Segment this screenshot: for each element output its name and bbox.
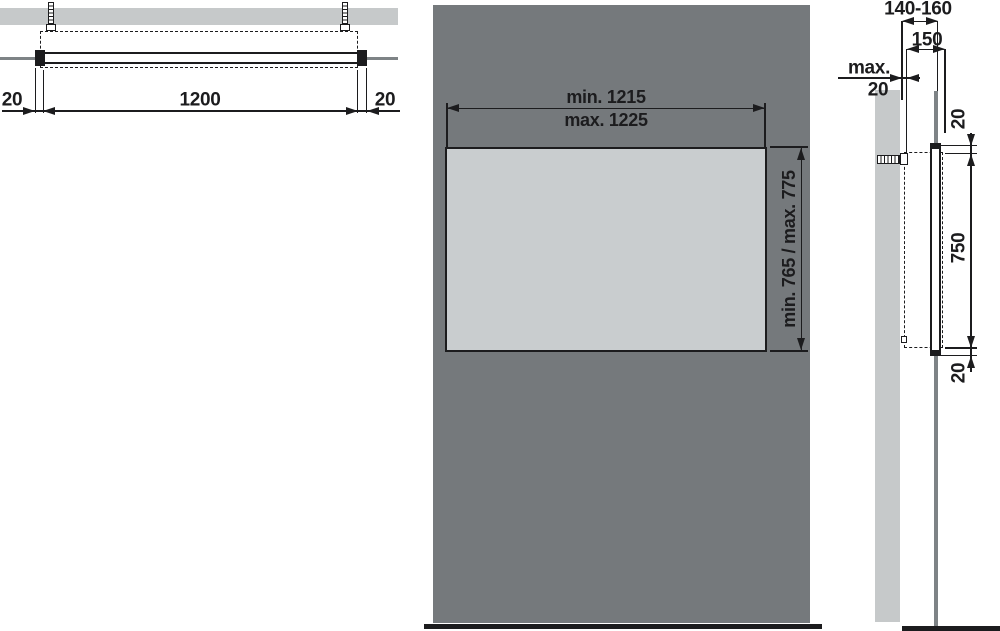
- dim-label-wall-gap-word: max.: [848, 59, 890, 78]
- mirror-end-cap-right: [357, 50, 367, 66]
- mounting-screw-right: [342, 2, 348, 25]
- extension-line: [906, 49, 908, 152]
- anchor-screw-side-head: [900, 153, 908, 165]
- extension-line: [945, 153, 977, 155]
- dim-arrow: [346, 107, 358, 115]
- dim-label-mirror-height: 750: [950, 233, 969, 264]
- wall-band-top-view: [0, 8, 398, 25]
- floor-line-side: [902, 626, 1000, 631]
- mounting-screw-right-head: [340, 24, 350, 31]
- dimension-line-niche-height: [801, 148, 803, 350]
- extension-line: [941, 355, 977, 357]
- extension-line: [945, 347, 977, 349]
- dim-arrow: [43, 107, 55, 115]
- dim-label-niche-width-min: min. 1215: [566, 88, 645, 106]
- mounting-screw-left-head: [46, 24, 56, 31]
- dim-arrow: [907, 45, 919, 53]
- dim-arrow: [797, 338, 805, 350]
- installation-drawing: 20 1200 20 min. 1215 max. 1225 min. 765 …: [0, 0, 1000, 631]
- dim-label-width: 1200: [179, 91, 220, 110]
- mounting-clip-side: [901, 336, 908, 343]
- anchor-screw-side: [877, 155, 900, 164]
- mirror-glass-top-view: [35, 52, 367, 64]
- extension-line: [901, 21, 903, 100]
- dim-label-wall-gap-value: 20: [868, 81, 889, 100]
- dim-label-niche-width-max: max. 1225: [564, 111, 647, 129]
- extension-line: [941, 145, 977, 147]
- mirror-glass-side: [930, 143, 941, 356]
- dim-arrow: [797, 148, 805, 160]
- extension-line: [937, 21, 939, 91]
- wall-side: [875, 90, 900, 622]
- mounting-screw-left: [48, 2, 54, 25]
- dim-label-bottom-overhang: 20: [950, 363, 969, 384]
- dim-label-right-offset: 20: [375, 91, 396, 110]
- dim-arrow: [902, 17, 914, 25]
- dim-arrow: [447, 104, 459, 112]
- dim-label-depth-range: 140-160: [884, 0, 952, 19]
- dim-arrow: [23, 107, 35, 115]
- dim-arrow: [753, 104, 765, 112]
- dim-arrow: [967, 154, 975, 166]
- dim-label-top-overhang: 20: [950, 109, 969, 130]
- floor-line-front: [424, 624, 822, 629]
- extension-line: [944, 49, 946, 133]
- wall-surface-line-right: [367, 57, 398, 60]
- dim-label-left-offset: 20: [2, 91, 23, 110]
- extension-line: [770, 350, 808, 352]
- wall-surface-line-left: [0, 57, 35, 60]
- dimension-line-niche-width: [447, 108, 765, 110]
- dim-arrow: [907, 74, 919, 82]
- dim-label-niche-height: min. 765 / max. 775: [780, 170, 798, 327]
- mirror-front: [445, 147, 767, 352]
- mirror-end-cap-left: [35, 50, 45, 66]
